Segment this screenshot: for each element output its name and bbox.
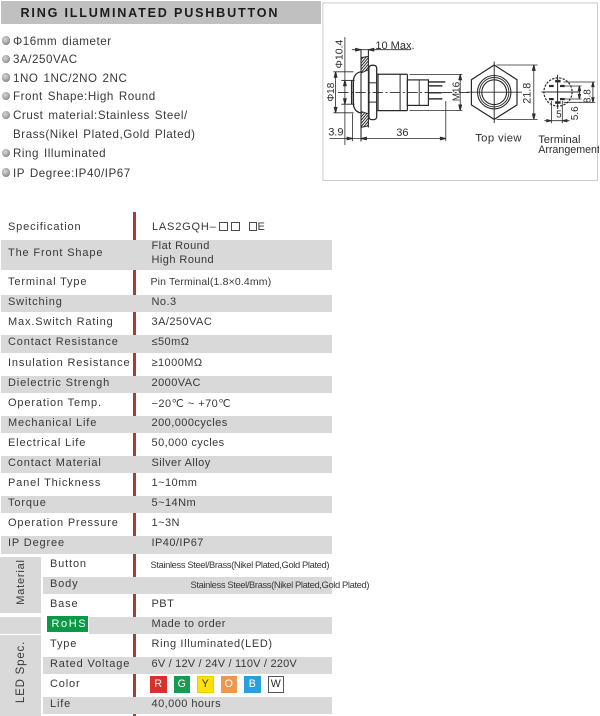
svg-text:5.6: 5.6	[570, 106, 581, 120]
svg-text:M16: M16	[451, 81, 462, 101]
svg-text:21.8: 21.8	[521, 83, 533, 104]
svg-text:Top view: Top view	[475, 132, 522, 144]
svg-text:8.8: 8.8	[583, 89, 594, 103]
svg-text:Φ10.4: Φ10.4	[334, 40, 346, 69]
svg-text:Φ18: Φ18	[326, 82, 337, 102]
svg-text:3.9: 3.9	[328, 127, 343, 139]
svg-text:36: 36	[396, 127, 408, 139]
svg-text:5: 5	[556, 109, 562, 120]
svg-text:Arrangement: Arrangement	[538, 144, 599, 156]
svg-text:10 Max.: 10 Max.	[375, 40, 414, 52]
